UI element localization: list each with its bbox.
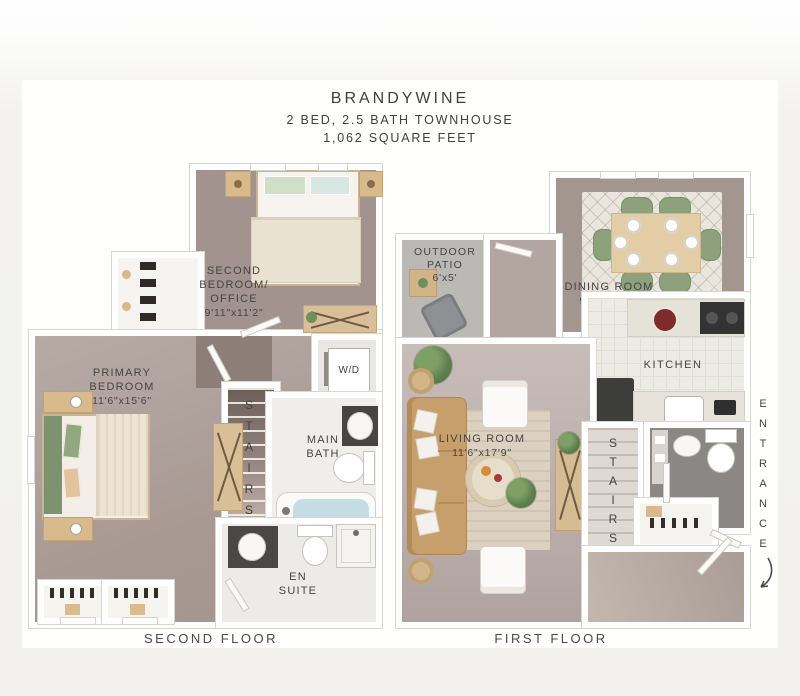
bed-pillow [63,467,82,498]
page-area: 1,062 SQUARE FEET [0,131,800,145]
plate-icon [684,235,699,250]
sink-icon [238,533,266,561]
bed-pillow [310,176,350,195]
bed-primary-bedroom [42,414,150,520]
burner-icon [726,312,738,324]
towel-icon [655,454,665,462]
washer-dryer: W/D [328,348,370,392]
entrance-arrow-icon [754,556,776,592]
cooktop [700,302,744,334]
label-second-bedroom: SECOND BEDROOM/ OFFICE 9'11"x11'2" [178,264,290,320]
bed-pillow [264,176,306,195]
nightstand [360,172,382,196]
refrigerator [588,378,634,422]
window [600,171,636,179]
closet-knob-icon [122,270,131,279]
bed-pillow [62,423,82,459]
storage-box-icon [65,604,80,615]
label-en-suite: EN SUITE [266,570,330,598]
toilet-tank [364,452,374,484]
sofa-pillow [414,410,437,433]
closet-primary [44,586,102,618]
room-main-bath [272,398,376,536]
toilet-icon [303,537,327,565]
ensuite-vanity [228,526,278,568]
shower [336,524,376,568]
label-outdoor-patio: OUTDOOR PATIO 6'x5' [402,246,488,285]
lamp-icon [70,523,82,535]
patio-chair [419,292,469,342]
window [658,171,694,179]
page-title: BRANDYWINE [0,90,800,108]
floorplan-page: BRANDYWINE 2 BED, 2.5 BATH TOWNHOUSE 1,0… [0,0,800,696]
window [318,163,348,171]
hanging-clothes-icon [50,588,96,598]
hanging-clothes-icon [114,588,162,598]
nightstand [226,172,250,196]
door-powder-room [664,464,669,502]
fruit-bowl-icon [652,307,678,333]
side-table [408,558,434,584]
caption-first-floor: FIRST FLOOR [461,631,641,646]
armchair [480,546,526,594]
window [746,214,754,258]
bathtub-faucet-icon [282,507,290,515]
stairs-label-second: STAIRS [242,398,256,538]
closet-knob-icon [122,302,131,311]
toilet-tank [298,526,332,536]
hanging-clothes-icon [650,518,704,528]
armchair [482,380,528,428]
lamp-icon [234,180,242,188]
window [60,617,96,625]
bathtub-water [293,499,369,526]
hall-to-patio [490,240,556,344]
dresser [214,424,242,510]
small-appliance-icon [714,400,736,415]
bed-blanket [96,414,148,516]
sink-icon [674,436,700,456]
food-icon [481,466,491,476]
dining-chair [700,230,720,260]
window [122,617,158,625]
page-subtitle: 2 BED, 2.5 BATH TOWNHOUSE [0,113,800,127]
plant-icon [506,478,536,508]
entry-closet [640,504,712,544]
plate-icon [613,235,628,250]
storage-box-icon [646,506,662,517]
toilet-icon [708,444,734,472]
stair-landing [196,336,272,388]
sofa-pillow [416,512,439,535]
hanging-clothes-icon [140,262,156,328]
plate-icon [626,252,641,267]
laundry-closet: W/D [318,340,376,396]
window [250,163,286,171]
plant-icon [306,312,317,323]
label-kitchen: KITCHEN [628,358,718,372]
stairs-label-first: STAIRS [606,436,620,548]
closet-primary [108,586,168,618]
toilet-tank [706,430,736,442]
shower-drain-icon [353,530,359,536]
sink-icon [664,396,704,424]
caption-second-floor: SECOND FLOOR [121,631,301,646]
kitchen-counter [634,392,744,432]
dining-chair [594,230,614,260]
lamp-icon [367,180,375,188]
food-icon [494,474,502,482]
storage-box-icon [130,604,145,615]
label-main-bath: MAIN BATH [286,433,360,461]
sofa-seam [438,502,464,504]
label-primary-bedroom: PRIMARY BEDROOM 11'6"x15'6" [62,366,182,408]
window [27,436,35,484]
label-living-room: LIVING ROOM 11'6"x17'9" [420,432,544,460]
washer-dryer-door [324,352,328,386]
entry-hall [588,552,744,622]
plate-icon [626,218,641,233]
plant-icon [558,432,580,454]
towel-icon [655,436,665,444]
entrance-label: ENTRANCE [757,398,769,558]
sofa [408,398,466,554]
side-table [408,368,434,394]
kitchen-counter [628,300,744,336]
desk [304,306,376,332]
nightstand [44,518,92,540]
dining-table [612,214,700,272]
burner-icon [706,312,718,324]
plate-icon [664,218,679,233]
washer-dryer-label: W/D [339,365,360,376]
plate-icon [664,252,679,267]
bed-headboard-cushions [44,416,62,514]
sofa-pillow [415,489,437,511]
